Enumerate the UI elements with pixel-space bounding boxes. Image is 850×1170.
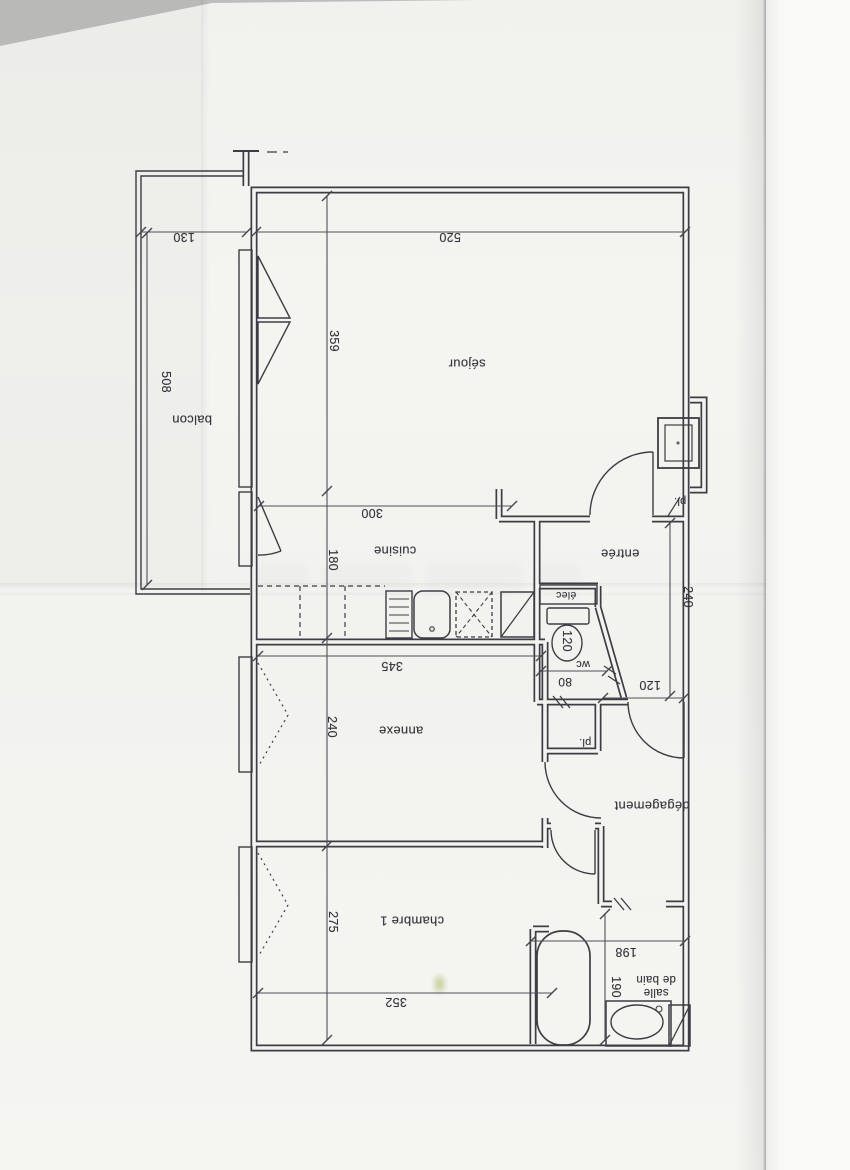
label-elec: élec bbox=[556, 589, 576, 601]
dim-entree-depth: 240 bbox=[681, 586, 695, 608]
floor-plan-drawing bbox=[0, 0, 850, 1170]
dim-wc-door: 80 bbox=[558, 675, 572, 689]
dim-balcon-length: 508 bbox=[159, 371, 173, 393]
dim-annexe-width: 345 bbox=[381, 659, 403, 673]
sejour-door-arc bbox=[590, 452, 653, 515]
dim-entree-width: 120 bbox=[639, 678, 661, 692]
dim-cuisine-depth: 180 bbox=[326, 549, 340, 571]
chambre-door-arc bbox=[551, 830, 595, 874]
kitchen-counter-dashed bbox=[258, 586, 385, 640]
label-annexe: annexe bbox=[379, 724, 423, 739]
dim-chambre-depth: 275 bbox=[326, 911, 340, 933]
french-door-leaf-bottom bbox=[258, 322, 290, 384]
fixtures bbox=[136, 151, 699, 1046]
dim-balcon-width: 130 bbox=[173, 230, 195, 244]
dim-sejour-width: 520 bbox=[439, 230, 461, 244]
chambre-window-swing bbox=[258, 853, 288, 957]
balcony-rail-inner bbox=[141, 176, 250, 589]
chambre-window-box bbox=[239, 847, 252, 962]
label-wc: wc bbox=[576, 658, 590, 670]
dim-cuisine-width: 300 bbox=[361, 506, 383, 520]
toilet-tank bbox=[547, 608, 589, 624]
annexe-window-box bbox=[239, 657, 252, 772]
dim-chambre-width: 352 bbox=[385, 995, 407, 1009]
label-balcon: balcon bbox=[172, 413, 212, 428]
label-salle-line2: de bain bbox=[636, 972, 676, 985]
label-degagement: dégagement bbox=[614, 799, 689, 814]
degagement-door-arc bbox=[628, 702, 684, 758]
dim-sdb-width: 198 bbox=[615, 945, 637, 959]
dim-sdb-depth: 190 bbox=[609, 976, 623, 998]
walls-outer bbox=[246, 152, 704, 1048]
dim-sejour-depth: 359 bbox=[327, 330, 341, 352]
label-sejour: séjour bbox=[448, 357, 485, 372]
label-entree: entrée bbox=[601, 547, 640, 562]
annexe-window-swing bbox=[258, 663, 288, 767]
walls-core bbox=[246, 152, 704, 1048]
label-placard-annexe: pl. bbox=[579, 736, 592, 748]
dim-wc-length: 120 bbox=[560, 630, 574, 652]
dim-annexe-depth: 240 bbox=[325, 716, 339, 738]
label-placard-entree: pl. bbox=[674, 495, 687, 507]
french-door-leaf-top bbox=[258, 256, 290, 318]
label-chambre-1: chambre 1 bbox=[380, 914, 444, 929]
label-cuisine: cuisine bbox=[374, 544, 417, 559]
label-salle-de-bain: salle de bain bbox=[636, 972, 676, 998]
annexe-door-arc bbox=[545, 762, 601, 818]
sejour-window-box bbox=[239, 250, 252, 487]
cuisine-window-box bbox=[239, 492, 252, 566]
bathtub bbox=[537, 931, 590, 1045]
label-salle-line1: salle bbox=[636, 985, 676, 998]
scanned-floor-plan-page: séjour balcon cuisine entrée annexe déga… bbox=[0, 0, 850, 1170]
apartment-outer-wall bbox=[254, 190, 686, 1048]
cuisine-door-arc bbox=[258, 551, 281, 555]
